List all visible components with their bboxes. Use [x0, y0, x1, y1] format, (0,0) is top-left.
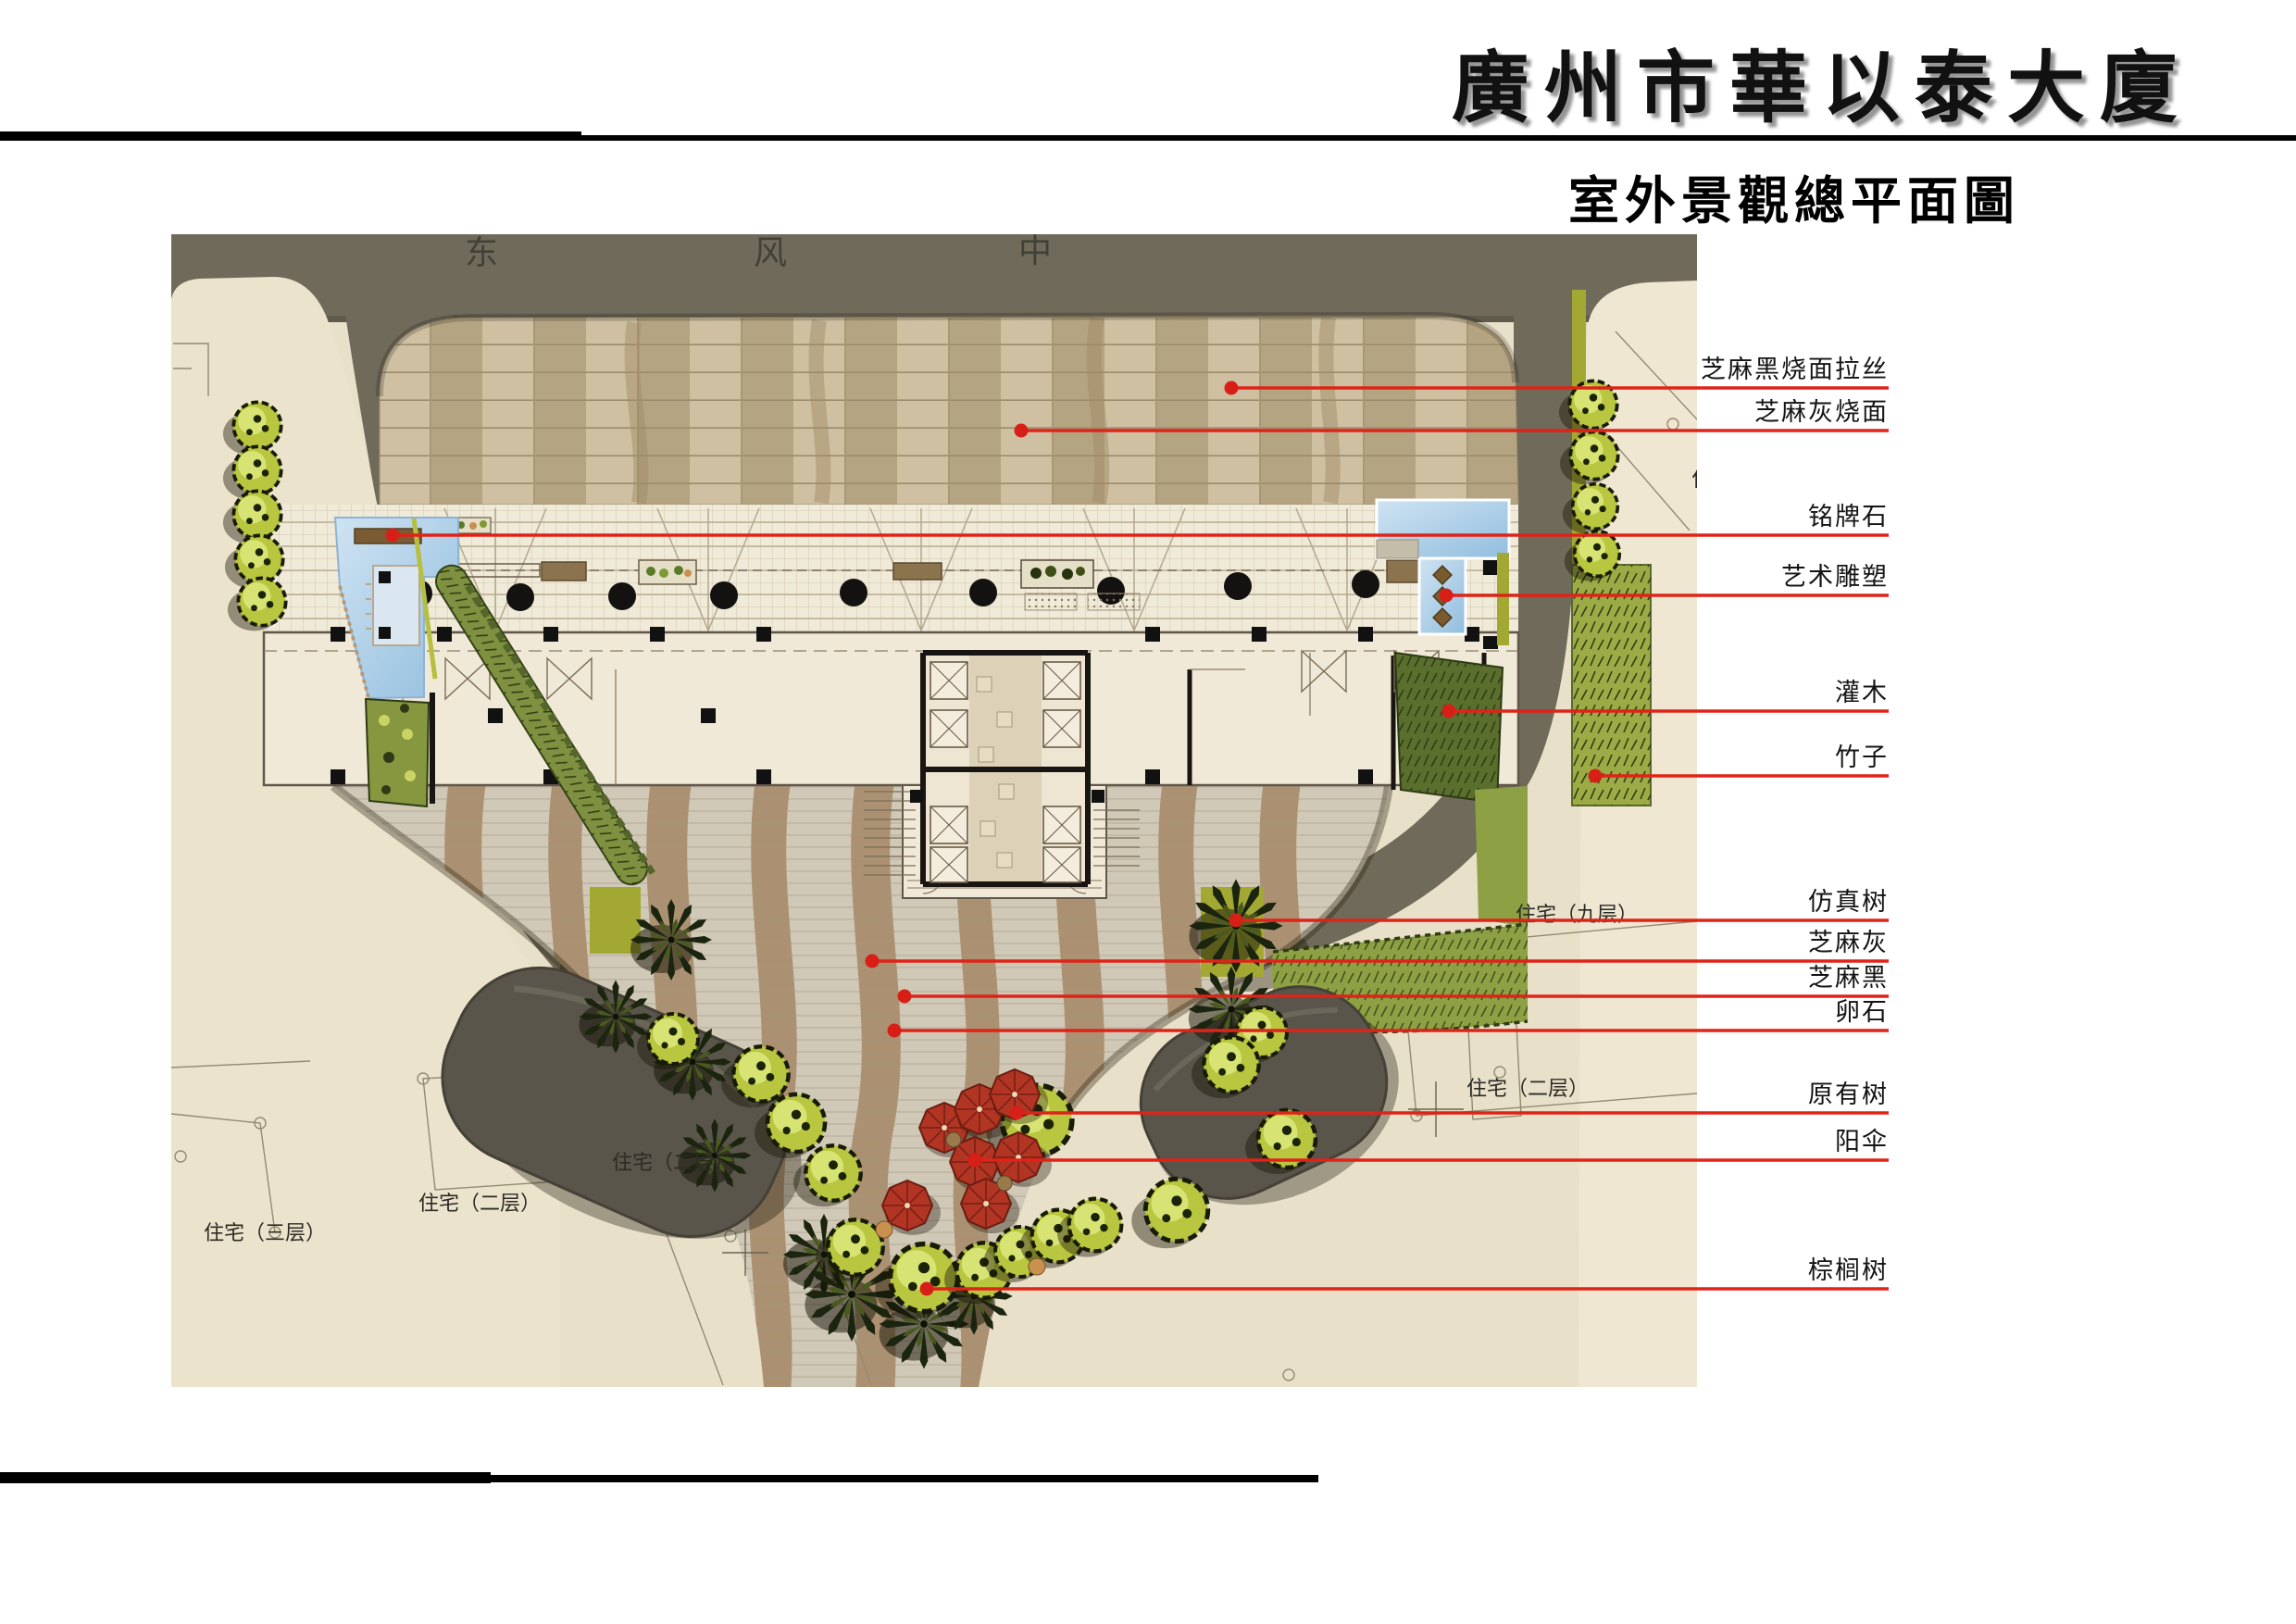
callout-bamboo: 竹子 — [1444, 745, 1889, 770]
street-char-dong: 东 — [465, 234, 498, 271]
label-residence-clipped: 住宅 — [1691, 467, 1697, 492]
callout-existing-tree: 原有树 — [1444, 1082, 1889, 1107]
callout-granite-grey-flamed: 芝麻灰烧面 — [1444, 400, 1889, 425]
callout-granite-black-flamed-brushed: 芝麻黑烧面拉丝 — [1444, 357, 1889, 382]
callout-artificial-tree: 仿真树 — [1444, 890, 1889, 915]
callout-art-sculpture: 艺术雕塑 — [1444, 565, 1889, 590]
label-residence-3f: 住宅（三层） — [204, 1221, 326, 1244]
callout-sesame-black: 芝麻黑 — [1444, 966, 1889, 991]
label-residence-2f-left: 住宅（二层） — [418, 1192, 541, 1215]
sheet-subtitle: 室外景觀總平面圖 — [1568, 159, 2020, 233]
label-residence-2f-mid: 住宅（二层） — [612, 1151, 734, 1174]
sheet-title: 廣州市華以泰大廈 — [1452, 26, 2192, 138]
shrub-bed — [1395, 653, 1503, 803]
bottom-rule — [0, 1475, 1318, 1482]
site-plan-sheet: 廣州市華以泰大廈 室外景觀總平面圖 — [0, 0, 2296, 1624]
title-divider — [0, 135, 2296, 141]
callout-shrub: 灌木 — [1444, 681, 1889, 706]
street-char-feng: 风 — [754, 234, 787, 271]
callout-nameplate-stone: 铭牌石 — [1444, 505, 1889, 530]
garden-bed — [366, 699, 429, 806]
callout-pebble: 卵石 — [1444, 1000, 1889, 1025]
street-char-zhong: 中 — [1018, 234, 1052, 269]
callout-palm-tree: 棕榈树 — [1444, 1258, 1889, 1283]
elevator-core — [923, 653, 1088, 884]
callout-sesame-grey: 芝麻灰 — [1444, 931, 1889, 956]
callout-parasol: 阳伞 — [1444, 1130, 1889, 1155]
upper-plaza — [380, 316, 1518, 505]
nameplate-stone — [355, 529, 421, 543]
